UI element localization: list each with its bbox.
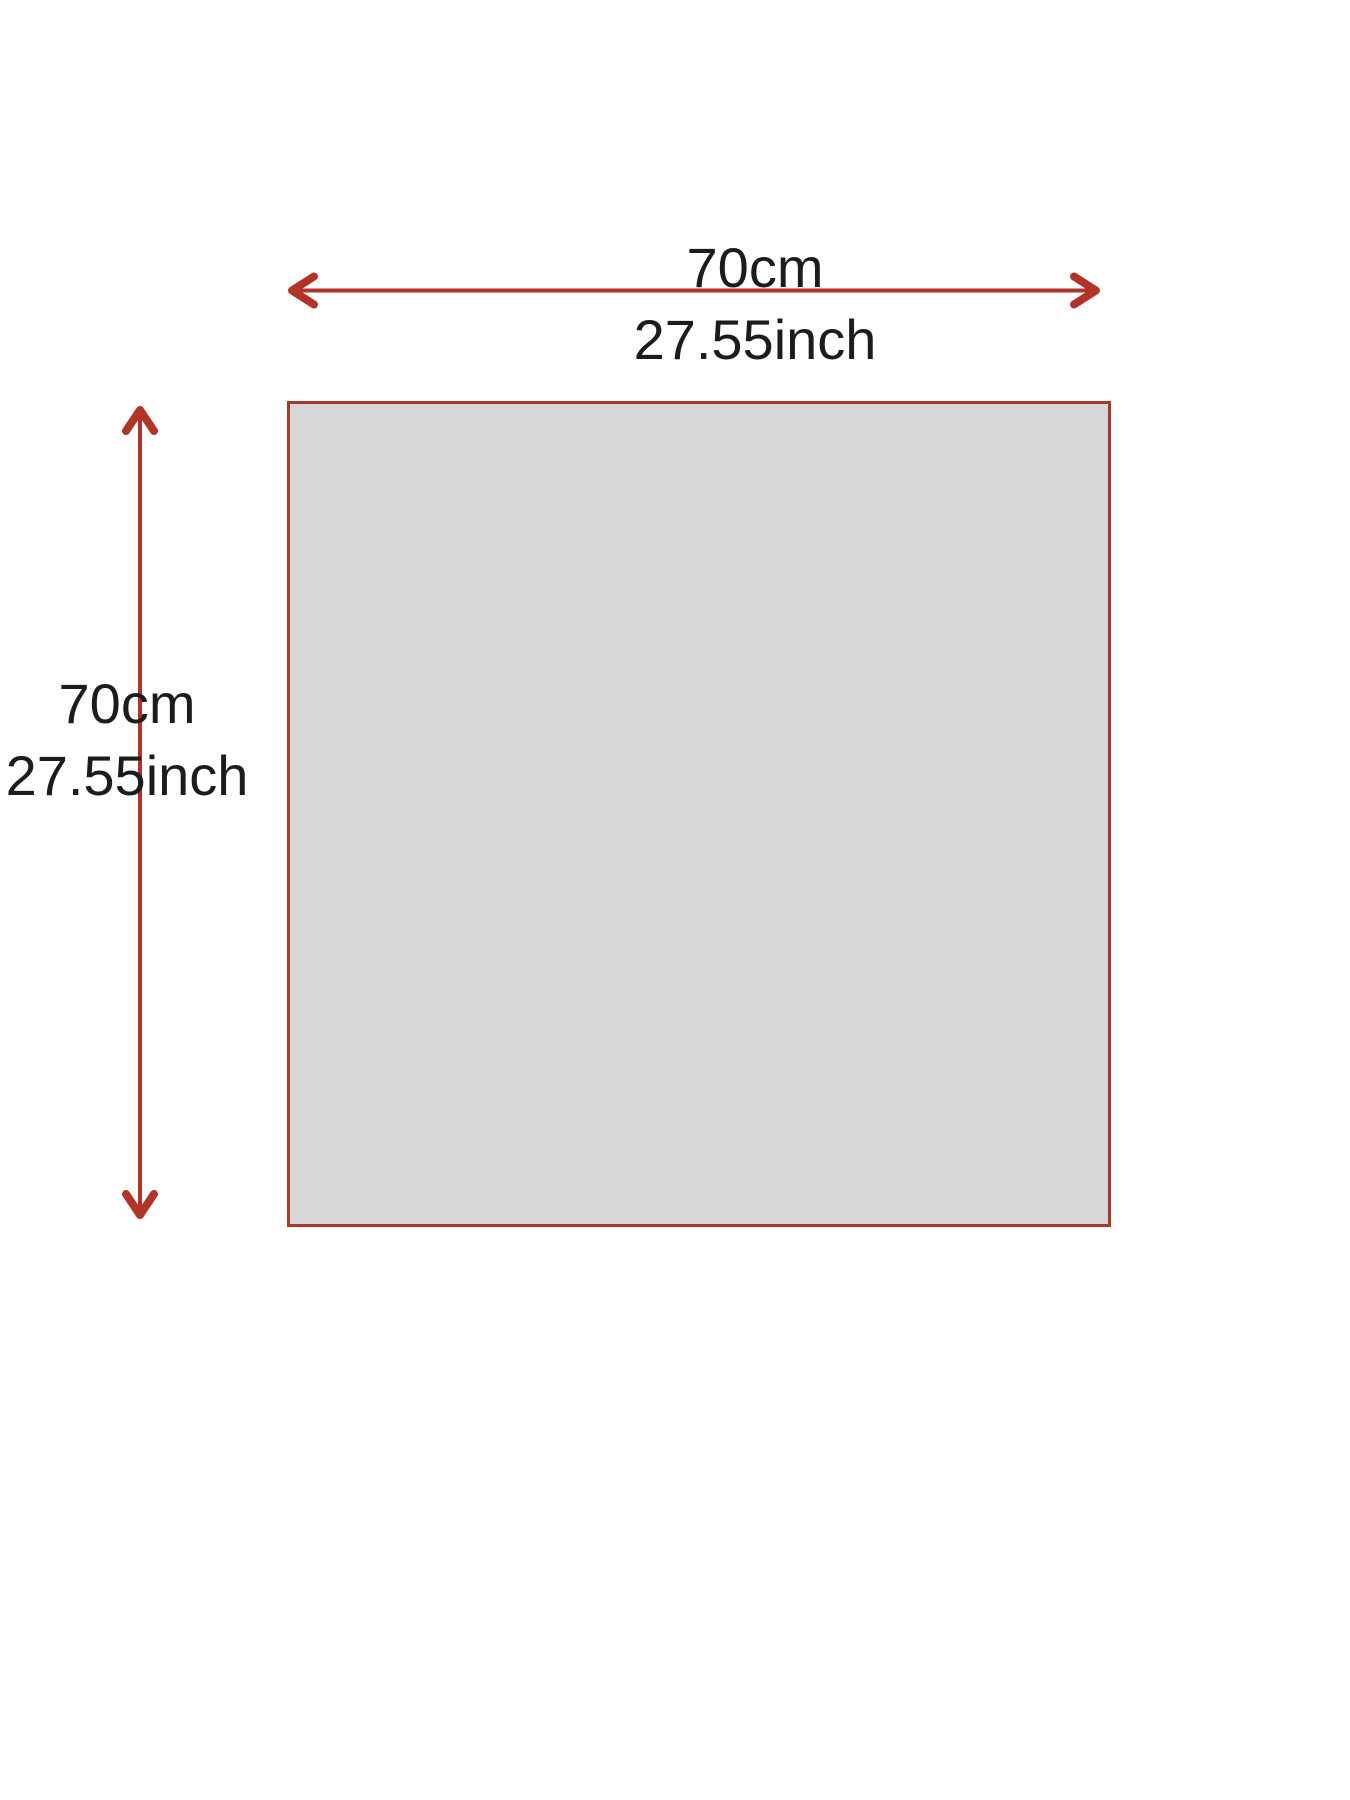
- width-inch-label: 27.55inch: [555, 304, 955, 376]
- width-cm-label: 70cm: [555, 232, 955, 304]
- width-dimension-label: 70cm 27.55inch: [555, 232, 955, 376]
- dimension-diagram: 70cm 27.55inch 70cm 27.55inch: [0, 0, 1350, 1800]
- height-dimension-label: 70cm 27.55inch: [0, 668, 257, 812]
- product-square: [289, 403, 1110, 1226]
- height-dimension-arrow: [126, 410, 154, 1215]
- height-cm-label: 70cm: [0, 668, 257, 740]
- height-inch-label: 27.55inch: [0, 740, 257, 812]
